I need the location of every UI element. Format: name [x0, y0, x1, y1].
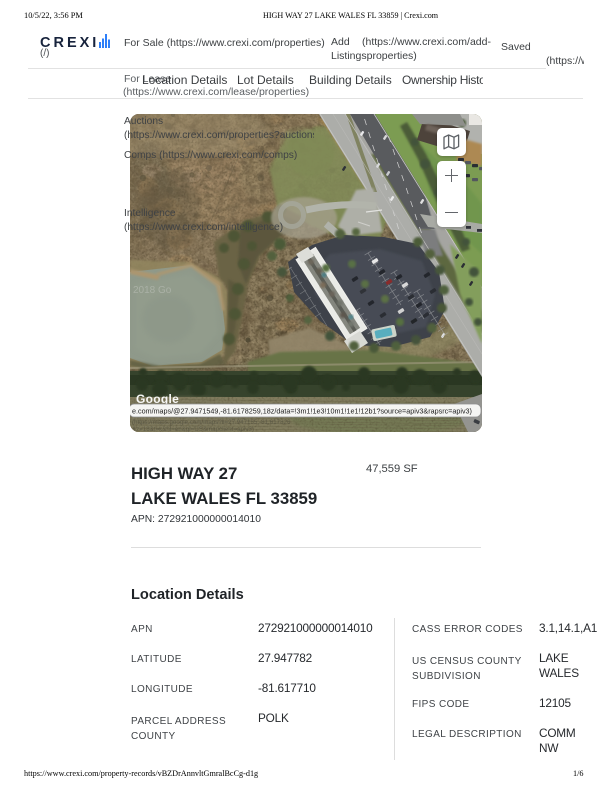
svg-text:(https://maps.google.com/maps?: (https://maps.google.com/maps?ll=27.9471… [132, 419, 291, 426]
svg-text:&z=18&t=k&hl=en&gl=US&mapclien: &z=18&t=k&hl=en&gl=US&mapclient=apiv3) [132, 426, 254, 432]
svg-text:e.com/maps/@27.9471549,-81.617: e.com/maps/@27.9471549,-81.6178259,18z/d… [132, 407, 472, 416]
svg-text:2018 Go: 2018 Go [133, 285, 172, 296]
